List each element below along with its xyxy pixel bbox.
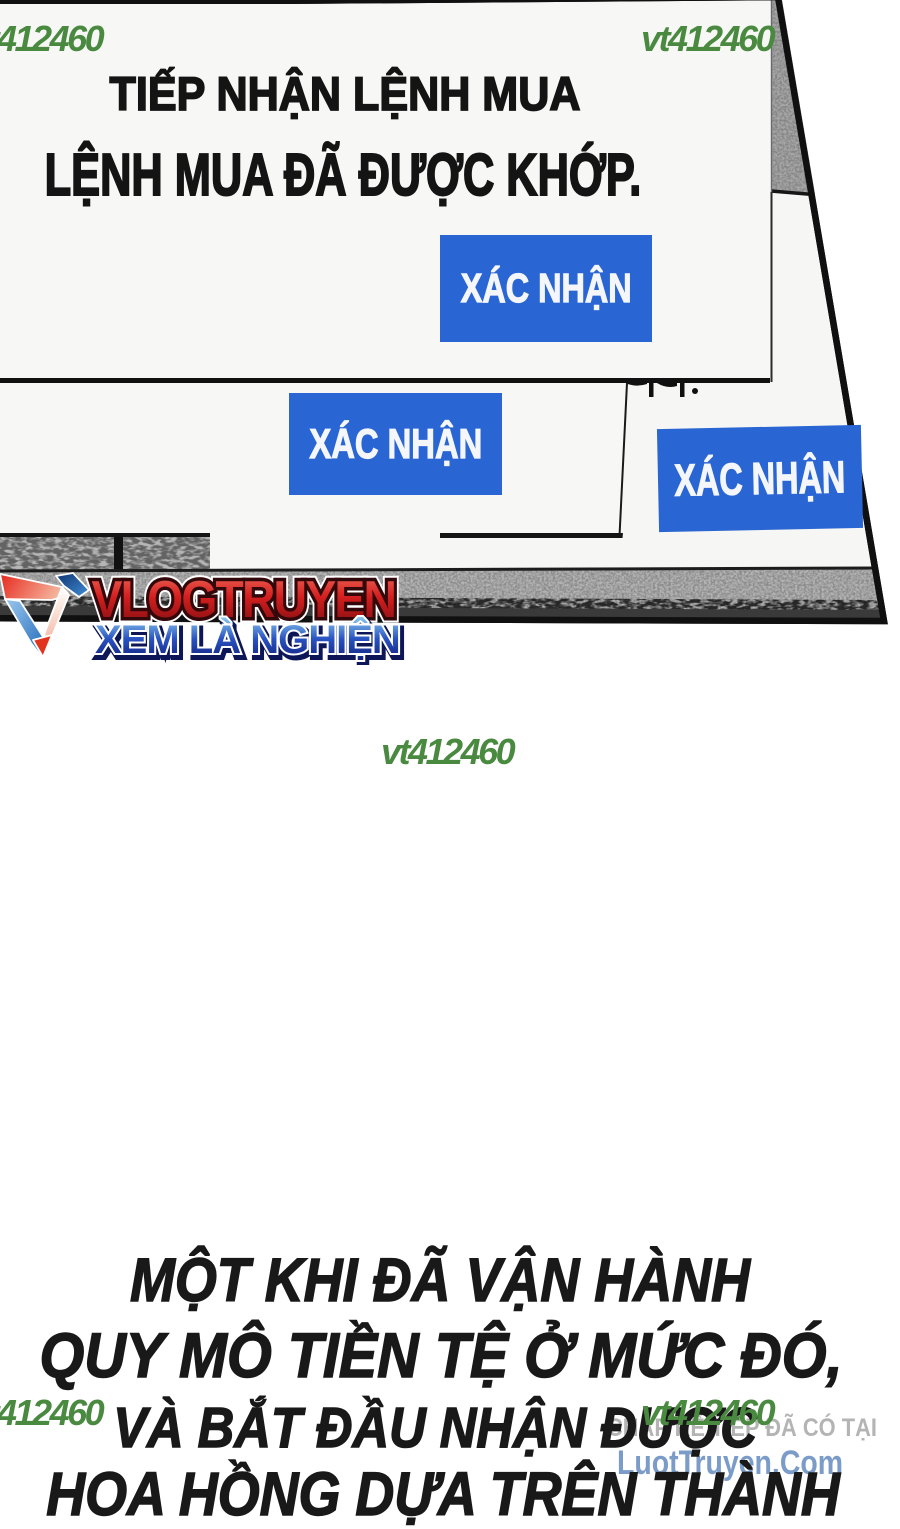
svg-text:XEM LÀ NGHIỆN: XEM LÀ NGHIỆN (95, 616, 400, 662)
